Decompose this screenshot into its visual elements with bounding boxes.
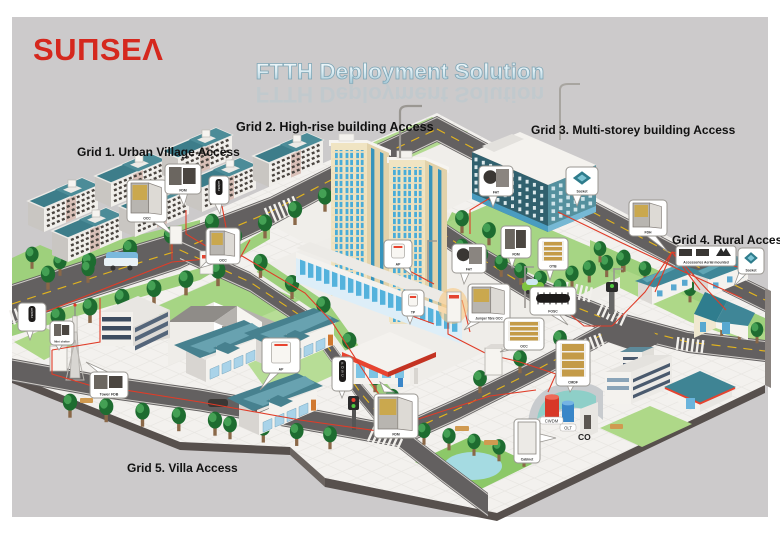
- svg-text:FAT: FAT: [466, 268, 473, 272]
- svg-text:FDM: FDM: [512, 253, 520, 257]
- svg-text:FTTH Deployment Solution: FTTH Deployment Solution: [256, 82, 545, 107]
- svg-text:OCC: OCC: [219, 259, 227, 263]
- svg-text:Socket: Socket: [576, 190, 588, 194]
- svg-text:Jumper fibre OCC: Jumper fibre OCC: [475, 317, 503, 321]
- svg-text:Tower FDB: Tower FDB: [100, 393, 119, 397]
- svg-text:Grid 3. Multi-storey building: Grid 3. Multi-storey building Access: [531, 123, 736, 137]
- svg-text:Accessories Aerial mounted: Accessories Aerial mounted: [683, 261, 728, 265]
- svg-text:OTB: OTB: [549, 265, 557, 269]
- svg-text:FTTH Deployment Solution: FTTH Deployment Solution: [256, 59, 545, 84]
- svg-text:Grid 5. Villa Access: Grid 5. Villa Access: [127, 461, 238, 475]
- svg-text:OLT: OLT: [564, 426, 572, 431]
- svg-text:CO: CO: [578, 432, 591, 442]
- svg-text:FOSC: FOSC: [548, 310, 558, 314]
- svg-text:AP: AP: [279, 368, 284, 372]
- svg-text:Socket: Socket: [745, 269, 757, 273]
- svg-text:AP: AP: [396, 263, 401, 267]
- svg-text:Mini shelter: Mini shelter: [54, 340, 70, 344]
- svg-text:OCC: OCC: [520, 345, 528, 349]
- svg-text:SUПSEΛ: SUПSEΛ: [33, 32, 163, 67]
- svg-text:CWDM: CWDM: [545, 419, 559, 424]
- svg-text:Cabinet: Cabinet: [521, 458, 534, 462]
- svg-text:Grid 4. Rural Access: Grid 4. Rural Access: [672, 233, 780, 247]
- svg-text:FDH: FDH: [645, 231, 653, 235]
- svg-text:FAT: FAT: [493, 191, 500, 195]
- svg-text:FDM: FDM: [179, 189, 187, 193]
- svg-text:OCC: OCC: [143, 217, 151, 221]
- svg-text:FDM: FDM: [392, 433, 400, 437]
- svg-text:TP: TP: [411, 311, 416, 315]
- svg-text:Grid 1. Urban Village Access: Grid 1. Urban Village Access: [77, 145, 240, 159]
- svg-text:Grid 2. High-rise building Acc: Grid 2. High-rise building Access: [236, 120, 434, 134]
- svg-text:CMDF: CMDF: [568, 381, 578, 385]
